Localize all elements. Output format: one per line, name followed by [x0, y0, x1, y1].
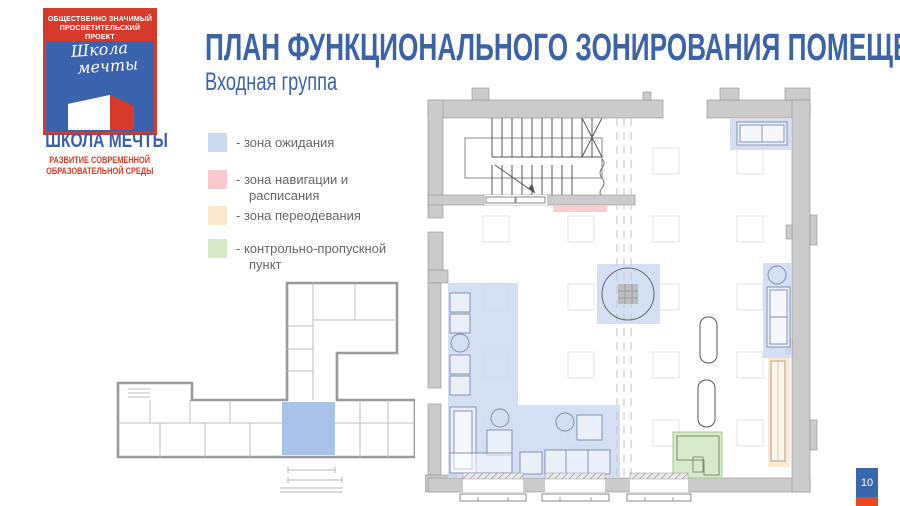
- changing-zone-swatch: [208, 206, 227, 225]
- waiting-zone-swatch: [208, 133, 227, 152]
- navigation-zone: [553, 205, 607, 212]
- key-plan-highlight-room: [282, 402, 335, 455]
- logo: ОБЩЕСТВЕННО ЗНАЧИМЫЙ ПРОСВЕТИТЕЛЬСКИЙ ПР…: [43, 8, 157, 135]
- key-plan-dimension-lines: [280, 467, 343, 492]
- sofa-top-right: [737, 122, 787, 145]
- page-number: 10: [856, 468, 878, 497]
- badge-red-strip: [856, 497, 878, 506]
- wardrobe: [771, 361, 785, 461]
- key-plan-outline: [118, 283, 415, 457]
- logo-building-icon: [46, 88, 154, 132]
- page-number-badge: 10: [856, 468, 878, 506]
- logo-banner-line1: ОБЩЕСТВЕННО ЗНАЧИМЫЙ: [48, 16, 152, 23]
- logo-name: ШКОЛА МЕЧТЫ: [28, 130, 172, 153]
- navigation-zone-swatch: [208, 170, 227, 189]
- logo-banner: ОБЩЕСТВЕННО ЗНАЧИМЫЙ ПРОСВЕТИТЕЛЬСКИЙ ПР…: [46, 11, 154, 41]
- logo-tagline: РАЗВИТИЕ СОВРЕМЕННОЙ ОБРАЗОВАТЕЛЬНОЙ СРЕ…: [18, 155, 182, 177]
- checkpoint-zone: [673, 432, 722, 478]
- key-plan: [110, 281, 415, 506]
- benches: [698, 317, 717, 427]
- windows: [460, 473, 691, 501]
- logo-script-text: Школа мечты: [45, 37, 155, 78]
- page-title: ПЛАН ФУНКЦИОНАЛЬНОГО ЗОНИРОВАНИЯ ПОМЕЩЕН…: [205, 27, 900, 70]
- staircase: [428, 118, 635, 205]
- checkpoint-zone-swatch: [208, 239, 227, 258]
- page-subtitle: Входная группа: [205, 68, 386, 97]
- main-plan: [425, 85, 820, 506]
